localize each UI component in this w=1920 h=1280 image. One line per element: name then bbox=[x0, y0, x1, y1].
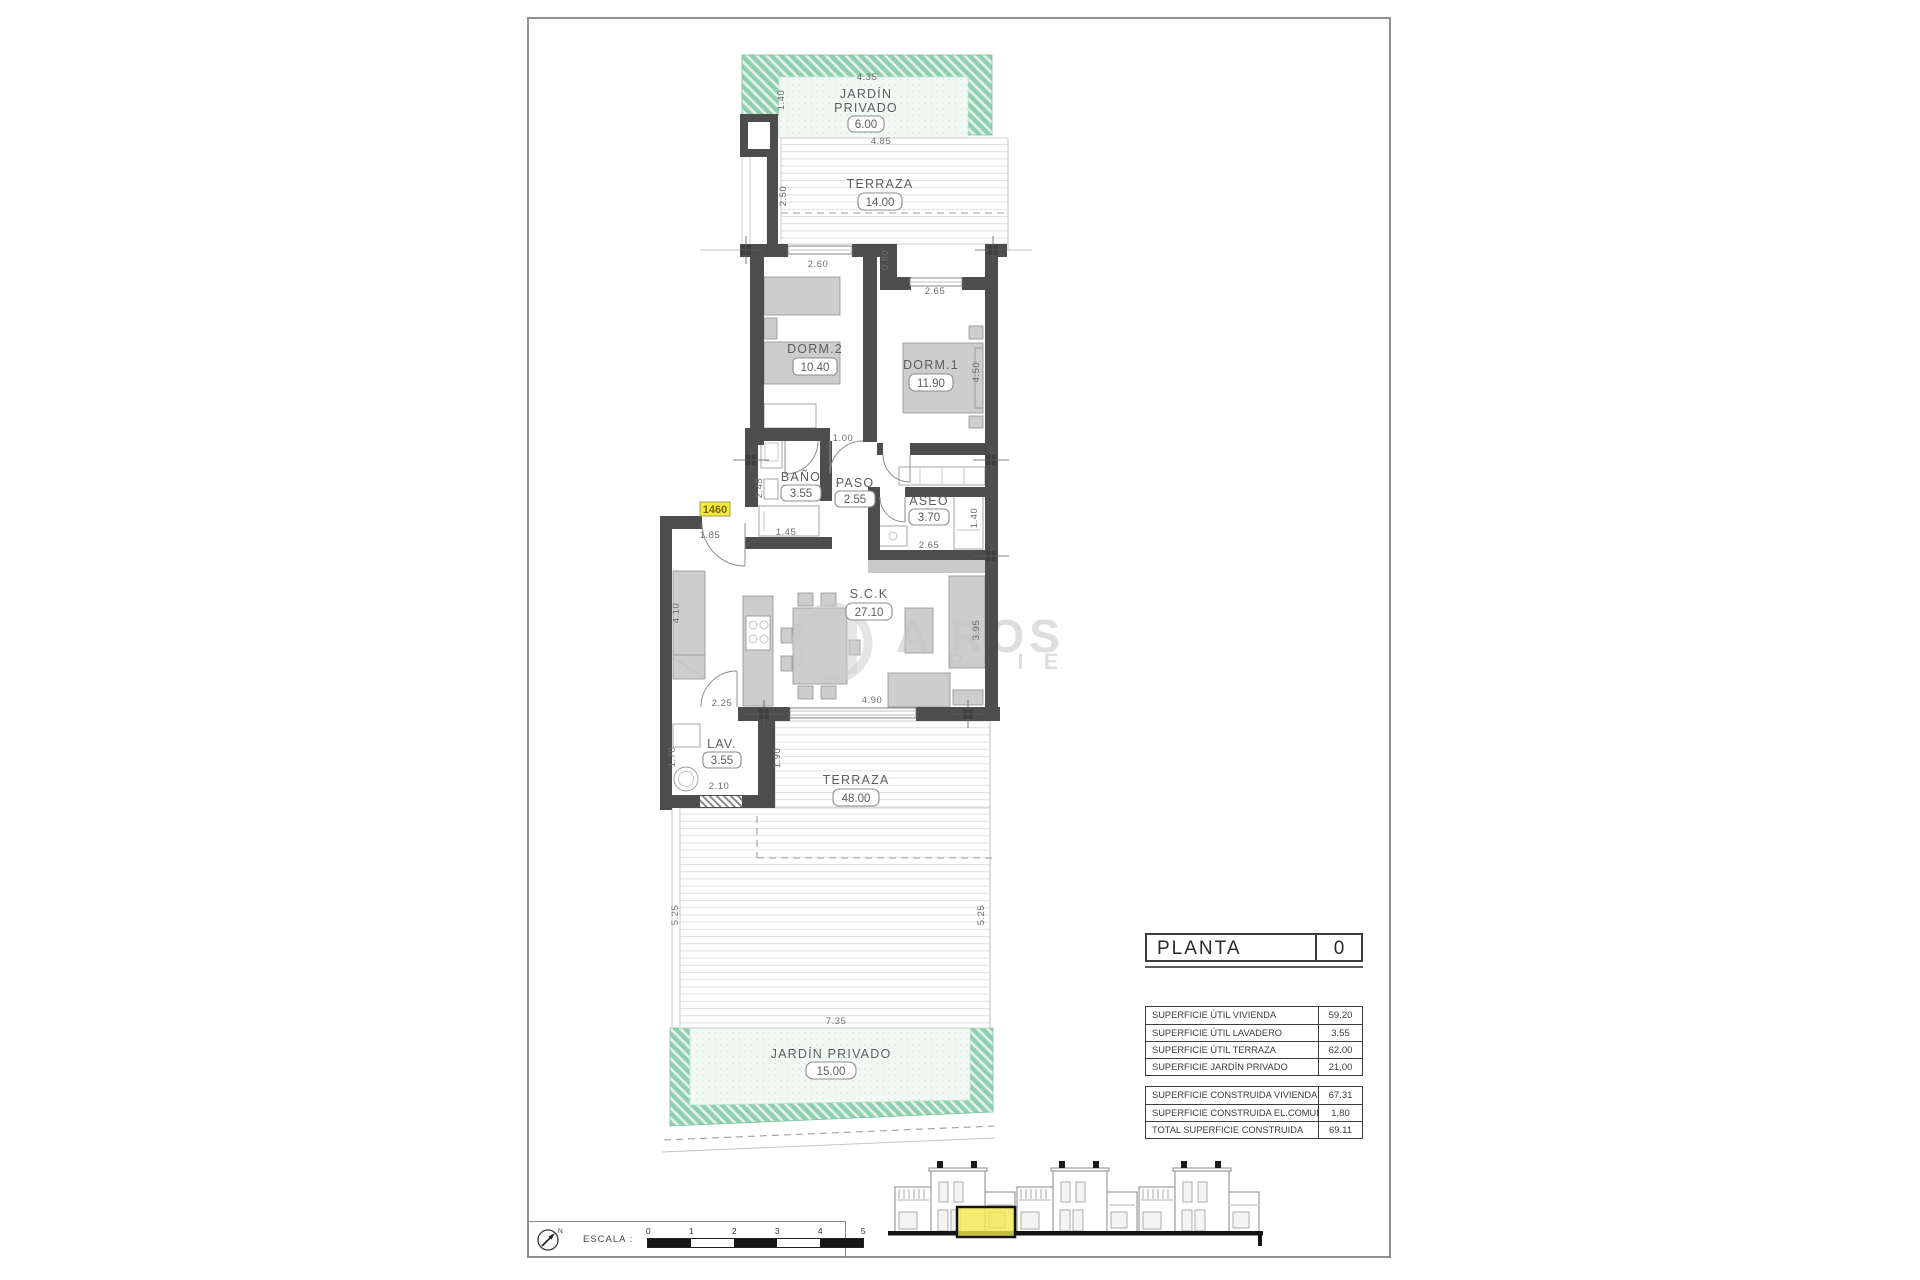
table-row: TOTAL SUPERFICIE CONSTRUIDA 69.11 bbox=[1146, 1121, 1362, 1138]
svg-text:JARDÍN PRIVADO: JARDÍN PRIVADO bbox=[771, 1046, 892, 1061]
lowered-ceiling-strip bbox=[868, 560, 987, 573]
row-label: TOTAL SUPERFICIE CONSTRUIDA bbox=[1146, 1122, 1318, 1138]
room-label-aseo: ASEO 3.70 bbox=[909, 494, 949, 525]
svg-text:5.25: 5.25 bbox=[670, 905, 681, 926]
row-label: SUPERFICIE ÚTIL TERRAZA bbox=[1146, 1042, 1318, 1058]
bathroom-sink bbox=[761, 438, 782, 468]
svg-text:1460: 1460 bbox=[703, 504, 727, 516]
table-row: SUPERFICIE JARDÍN PRIVADO 21,00 bbox=[1146, 1058, 1362, 1075]
svg-text:2.45: 2.45 bbox=[754, 478, 765, 499]
planta-label: PLANTA bbox=[1147, 935, 1315, 960]
svg-text:PASO: PASO bbox=[836, 476, 875, 490]
table-row: SUPERFICIE CONSTRUIDA VIVIENDA 67.31 bbox=[1146, 1087, 1362, 1104]
svg-text:3.55: 3.55 bbox=[790, 488, 812, 500]
svg-text:2.60: 2.60 bbox=[808, 259, 829, 270]
svg-text:DORM.1: DORM.1 bbox=[903, 358, 959, 372]
highlighted-unit bbox=[957, 1207, 1015, 1237]
svg-text:1.40: 1.40 bbox=[969, 508, 980, 529]
svg-text:1.85: 1.85 bbox=[700, 530, 721, 541]
row-label: SUPERFICIE JARDÍN PRIVADO bbox=[1146, 1059, 1318, 1075]
row-value: 69.11 bbox=[1318, 1122, 1362, 1138]
row-label: SUPERFICIE ÚTIL VIVIENDA bbox=[1146, 1007, 1318, 1024]
svg-text:10.40: 10.40 bbox=[801, 362, 830, 374]
row-label: SUPERFICIE CONSTRUIDA VIVIENDA bbox=[1146, 1087, 1318, 1104]
svg-text:2.10: 2.10 bbox=[709, 781, 730, 792]
svg-text:48.00: 48.00 bbox=[842, 793, 871, 805]
side-strip bbox=[742, 155, 767, 250]
dorm1-wardrobe bbox=[899, 467, 985, 485]
svg-text:4.90: 4.90 bbox=[862, 695, 883, 706]
row-value: 1,80 bbox=[1318, 1105, 1362, 1121]
room-label-paso: PASO 2.55 bbox=[835, 476, 875, 507]
scale-tick: 0 bbox=[643, 1226, 653, 1236]
kitchen-island bbox=[743, 596, 773, 706]
svg-text:5.25: 5.25 bbox=[976, 905, 987, 926]
svg-text:1.45: 1.45 bbox=[776, 527, 797, 538]
terrace-sliding-door bbox=[790, 708, 916, 718]
scale-bar-segments bbox=[647, 1238, 864, 1248]
svg-text:TERRAZA: TERRAZA bbox=[823, 773, 890, 787]
drawing-canvas: A ROS R T I E bbox=[0, 0, 1920, 1280]
row-value: 21,00 bbox=[1318, 1059, 1362, 1075]
elevation-ground-line bbox=[888, 1231, 1263, 1236]
svg-text:JARDÍN: JARDÍN bbox=[840, 86, 892, 101]
laundry-cabinet bbox=[673, 724, 700, 747]
svg-text:2.65: 2.65 bbox=[925, 286, 946, 297]
svg-text:3.70: 3.70 bbox=[918, 512, 940, 524]
planta-value: 0 bbox=[1315, 935, 1361, 960]
svg-text:S.C.K: S.C.K bbox=[850, 587, 889, 601]
svg-text:2.55: 2.55 bbox=[844, 494, 866, 506]
svg-text:TERRAZA: TERRAZA bbox=[847, 177, 914, 191]
svg-text:1.00: 1.00 bbox=[833, 433, 854, 444]
svg-text:11.90: 11.90 bbox=[917, 378, 945, 390]
building-elevation bbox=[888, 1161, 1263, 1246]
svg-text:2.25: 2.25 bbox=[712, 698, 733, 709]
svg-text:14.00: 14.00 bbox=[866, 197, 895, 209]
floor-plan-svg: A ROS R T I E bbox=[0, 0, 1920, 1280]
svg-text:3.55: 3.55 bbox=[711, 755, 733, 767]
dorm2-desk bbox=[764, 404, 816, 428]
table-row: SUPERFICIE ÚTIL LAVADERO 3.55 bbox=[1146, 1024, 1362, 1041]
bathroom-toilet bbox=[764, 479, 778, 499]
row-value: 62.00 bbox=[1318, 1042, 1362, 1058]
row-label: SUPERFICIE CONSTRUIDA EL.COMUNES bbox=[1146, 1105, 1318, 1121]
table-row: SUPERFICIE ÚTIL VIVIENDA 59.20 bbox=[1146, 1007, 1362, 1024]
room-label-bano: BAÑO 3.55 bbox=[781, 470, 821, 501]
room-label-dorm1: DORM.1 11.90 bbox=[903, 358, 959, 391]
svg-text:3.95: 3.95 bbox=[971, 620, 982, 641]
svg-text:0.80: 0.80 bbox=[880, 250, 891, 271]
unit-number-badge: 1460 bbox=[700, 502, 730, 516]
svg-text:1.70: 1.70 bbox=[667, 747, 678, 768]
svg-text:27.10: 27.10 bbox=[855, 607, 884, 619]
svg-text:PRIVADO: PRIVADO bbox=[834, 101, 898, 115]
svg-text:1.90: 1.90 bbox=[772, 748, 783, 769]
north-arrow-icon: N bbox=[535, 1225, 563, 1253]
svg-text:1.40: 1.40 bbox=[776, 90, 787, 111]
svg-text:4.35: 4.35 bbox=[857, 72, 878, 83]
svg-text:N: N bbox=[558, 1228, 563, 1235]
dorm1-nightstand-2 bbox=[969, 416, 983, 428]
scale-tick: 4 bbox=[815, 1226, 825, 1236]
vent-sill bbox=[700, 796, 742, 807]
washing-machine bbox=[674, 767, 698, 791]
svg-text:4.85: 4.85 bbox=[871, 136, 892, 147]
row-value: 59.20 bbox=[1318, 1007, 1362, 1024]
planta-underline bbox=[1145, 966, 1363, 968]
svg-text:2.50: 2.50 bbox=[778, 186, 789, 207]
row-value: 3.55 bbox=[1318, 1025, 1362, 1041]
watermark-line2: R T I E bbox=[948, 649, 1065, 674]
room-label-sck: S.C.K 27.10 bbox=[846, 587, 892, 620]
svg-text:4.10: 4.10 bbox=[671, 603, 682, 624]
row-label: SUPERFICIE ÚTIL LAVADERO bbox=[1146, 1025, 1318, 1041]
aseo-sink bbox=[879, 526, 907, 546]
scale-box: N ESCALA : 0 1 2 3 4 5 bbox=[528, 1221, 846, 1257]
svg-text:7.35: 7.35 bbox=[826, 1016, 847, 1027]
scale-tick: 3 bbox=[772, 1226, 782, 1236]
svg-text:6.00: 6.00 bbox=[855, 119, 877, 131]
scale-label: ESCALA : bbox=[583, 1234, 633, 1245]
planta-table: PLANTA 0 bbox=[1145, 933, 1363, 962]
svg-text:DORM.2: DORM.2 bbox=[787, 342, 843, 356]
sofa-bottom bbox=[888, 673, 950, 707]
scale-tick: 1 bbox=[686, 1226, 696, 1236]
svg-text:4.50: 4.50 bbox=[971, 362, 982, 383]
scale-bar: 0 1 2 3 4 5 bbox=[647, 1225, 845, 1253]
surface-util-table: SUPERFICIE ÚTIL VIVIENDA 59.20 SUPERFICI… bbox=[1145, 1006, 1363, 1076]
svg-text:2.65: 2.65 bbox=[919, 540, 940, 551]
dorm2-nightstand bbox=[764, 318, 777, 339]
dorm2-bed1 bbox=[764, 277, 840, 315]
svg-text:BAÑO: BAÑO bbox=[781, 470, 821, 484]
table-row: SUPERFICIE ÚTIL TERRAZA 62.00 bbox=[1146, 1041, 1362, 1058]
dorm1-nightstand-1 bbox=[969, 326, 983, 339]
scale-tick: 2 bbox=[729, 1226, 739, 1236]
scale-tick: 5 bbox=[858, 1226, 868, 1236]
room-label-dorm2: DORM.2 10.40 bbox=[787, 342, 843, 375]
svg-text:15.00: 15.00 bbox=[817, 1066, 846, 1078]
svg-text:LAV.: LAV. bbox=[707, 737, 737, 751]
row-value: 67.31 bbox=[1318, 1087, 1362, 1104]
svg-text:ASEO: ASEO bbox=[909, 494, 949, 508]
room-label-lav: LAV. 3.55 bbox=[703, 737, 741, 768]
table-row: SUPERFICIE CONSTRUIDA EL.COMUNES 1,80 bbox=[1146, 1104, 1362, 1121]
surface-construida-table: SUPERFICIE CONSTRUIDA VIVIENDA 67.31 SUP… bbox=[1145, 1086, 1363, 1139]
